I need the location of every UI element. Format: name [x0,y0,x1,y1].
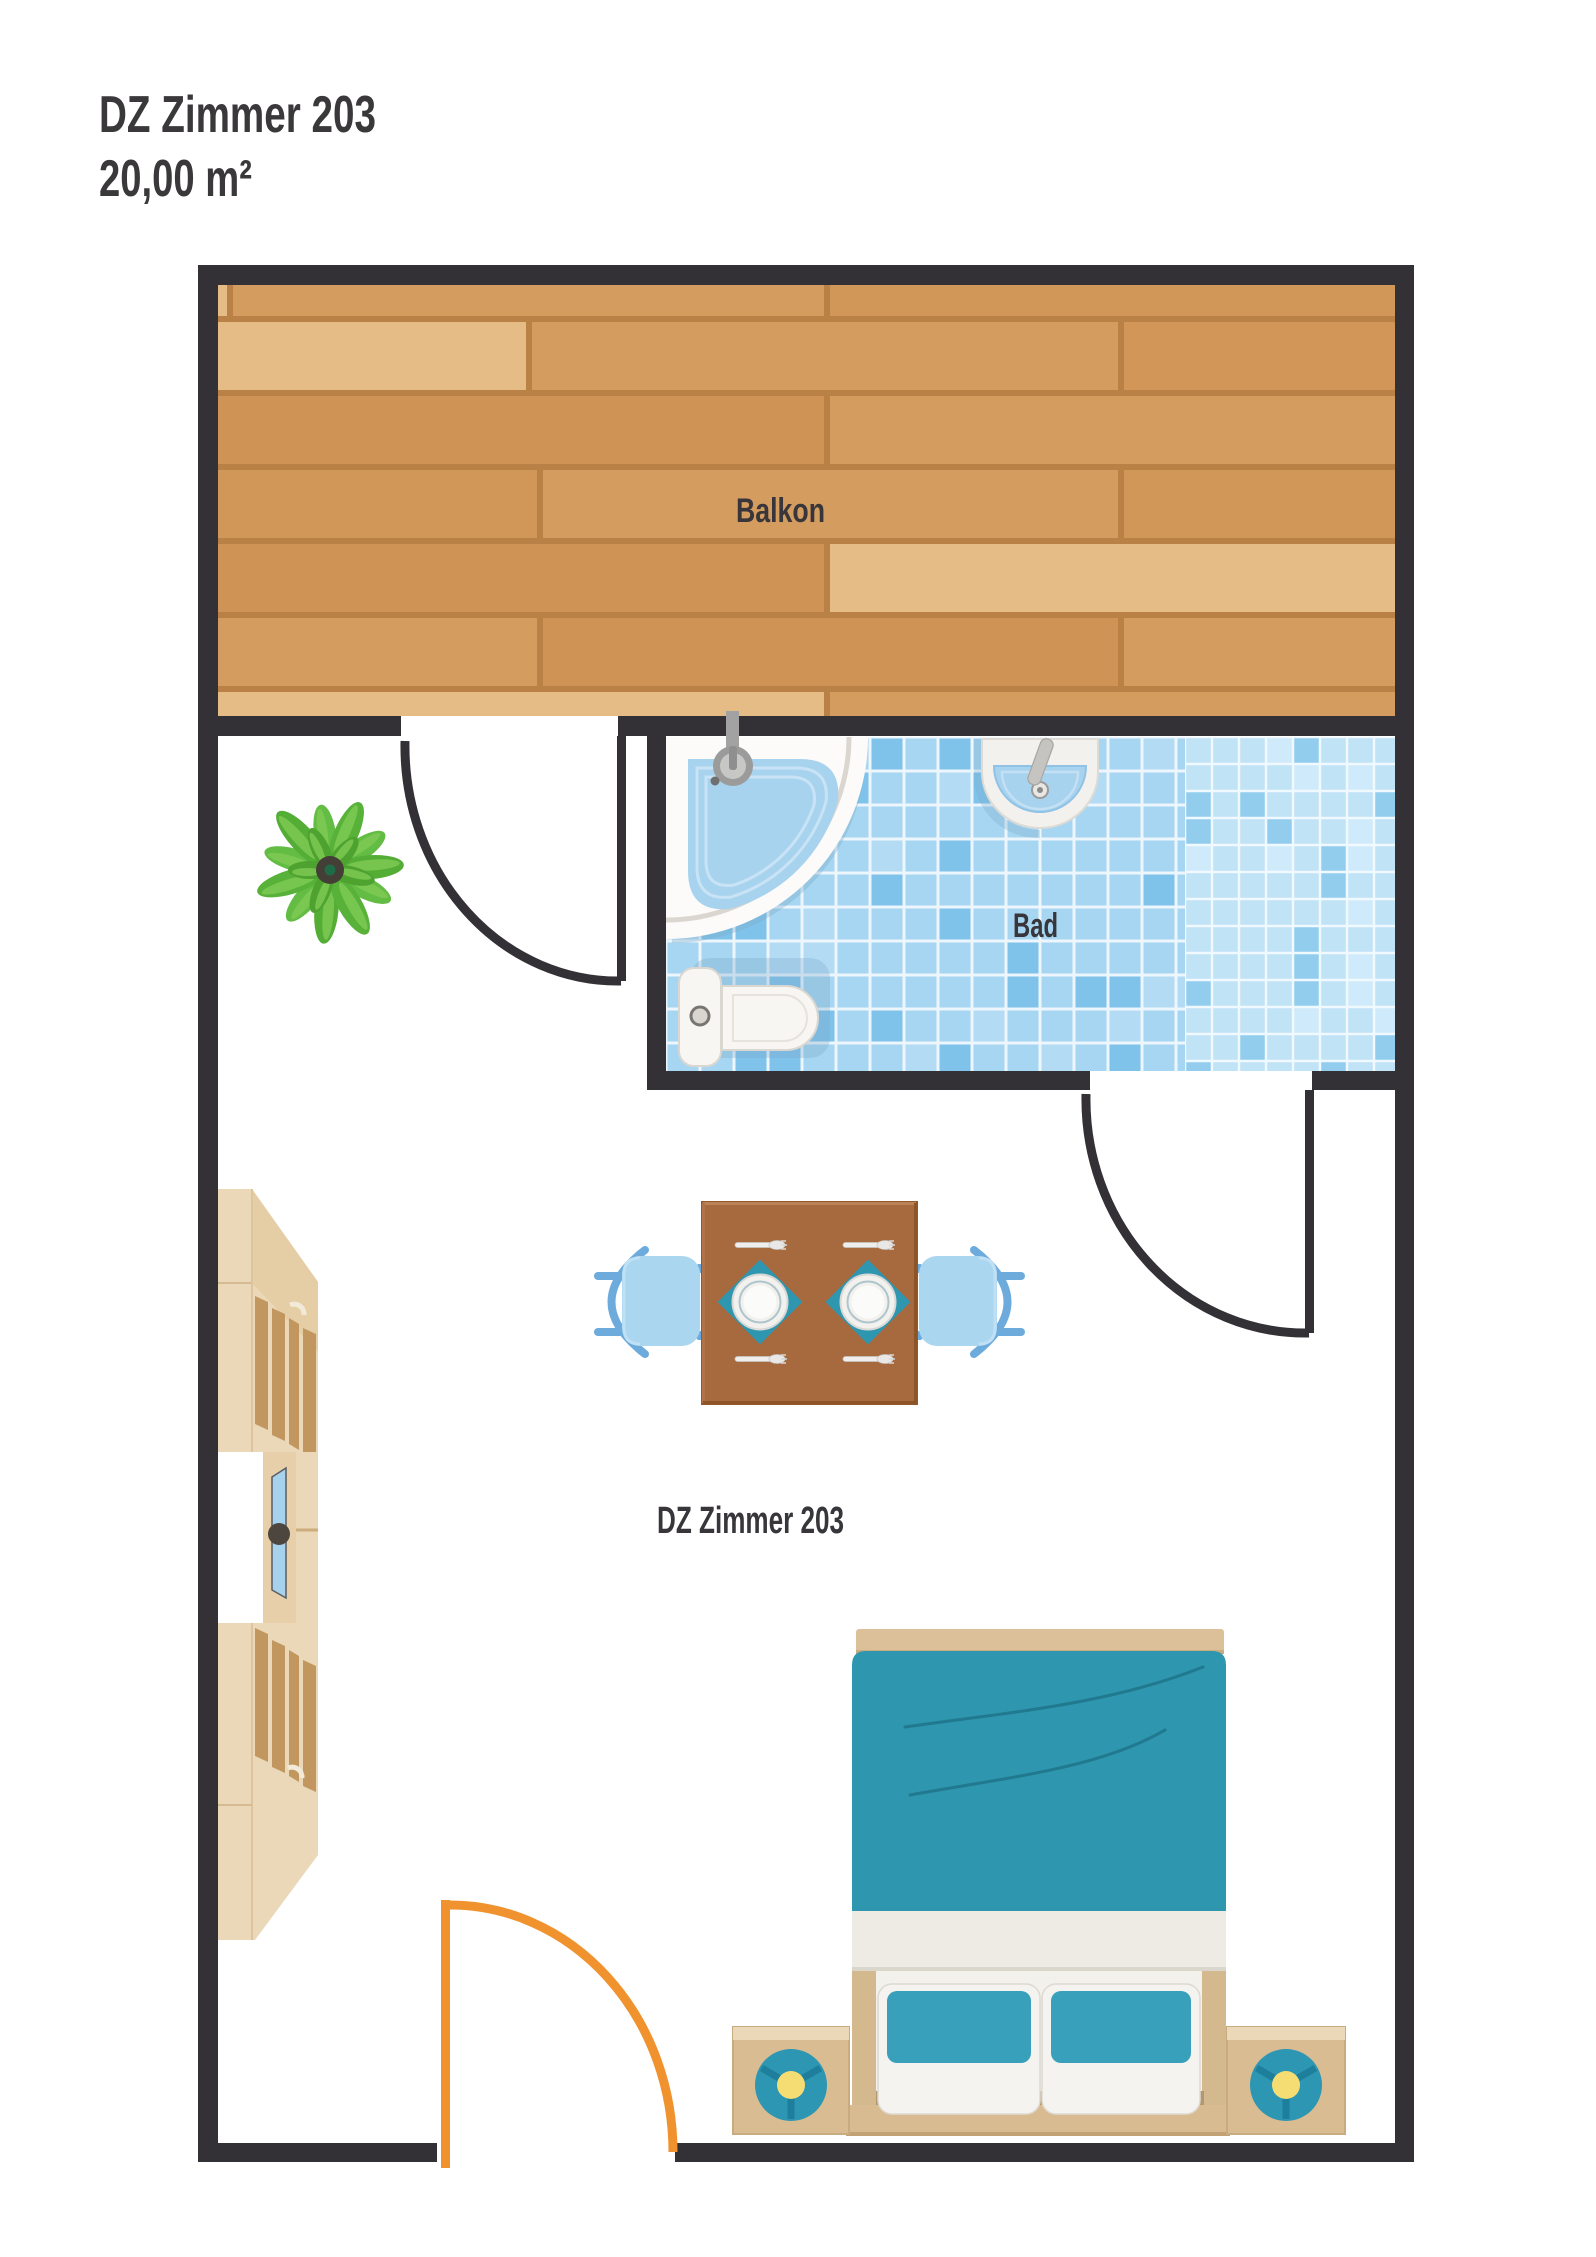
svg-text:20,00 m²: 20,00 m² [99,150,252,208]
svg-text:Balkon: Balkon [736,492,825,530]
svg-text:Bad: Bad [1013,907,1058,945]
svg-text:DZ Zimmer 203: DZ Zimmer 203 [657,1500,844,1542]
svg-text:DZ Zimmer 203: DZ Zimmer 203 [99,86,376,144]
